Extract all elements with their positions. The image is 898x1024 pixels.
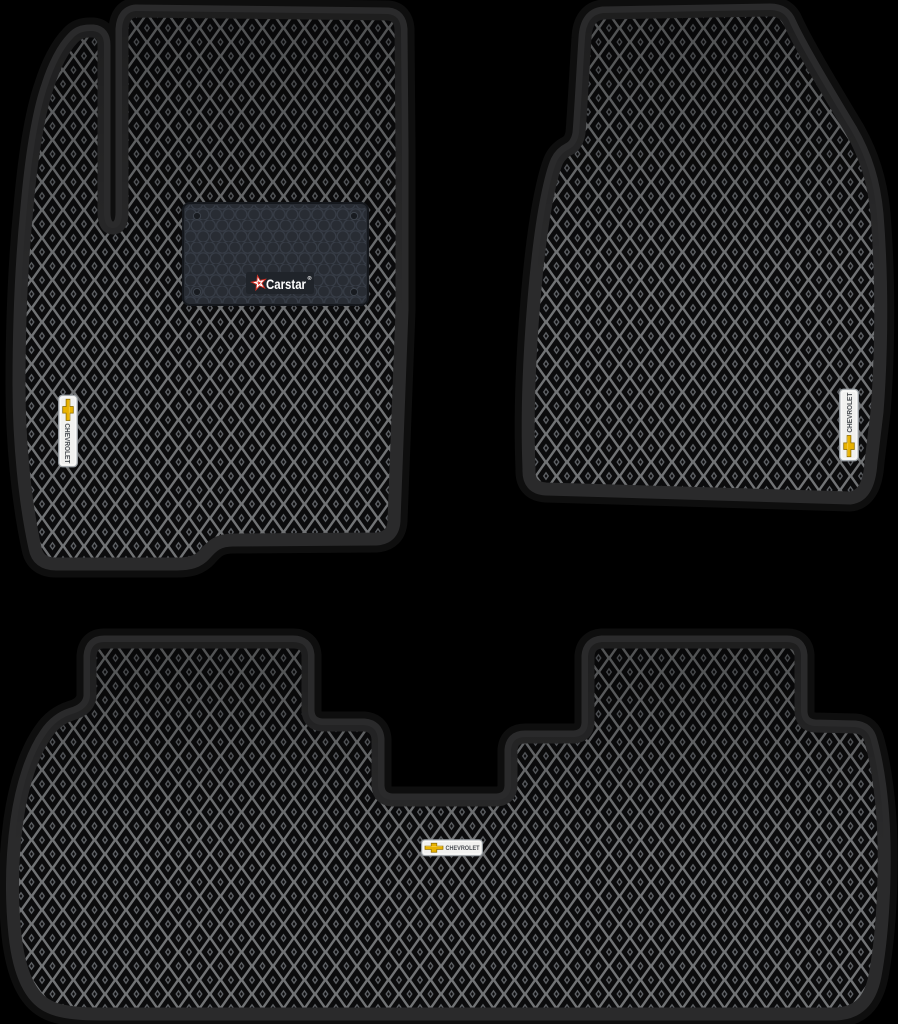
heel-pad: Carstar ® <box>183 203 368 305</box>
chevrolet-badge-rear <box>422 840 483 856</box>
floor-mats-product-image: CHEVROLET Carstar <box>0 0 898 1024</box>
front-driver-mat: Carstar ® <box>19 11 402 564</box>
front-passenger-mat <box>528 10 881 498</box>
scene: { "scene": { "type": "product-photo", "s… <box>0 0 898 1024</box>
carstar-logo-label: Carstar <box>266 277 307 292</box>
carstar-logo: Carstar ® <box>246 272 314 294</box>
chevrolet-badge-front-passenger <box>840 389 859 461</box>
chevrolet-badge-front-driver <box>59 395 78 467</box>
carstar-logo-reg-mark: ® <box>308 275 312 282</box>
